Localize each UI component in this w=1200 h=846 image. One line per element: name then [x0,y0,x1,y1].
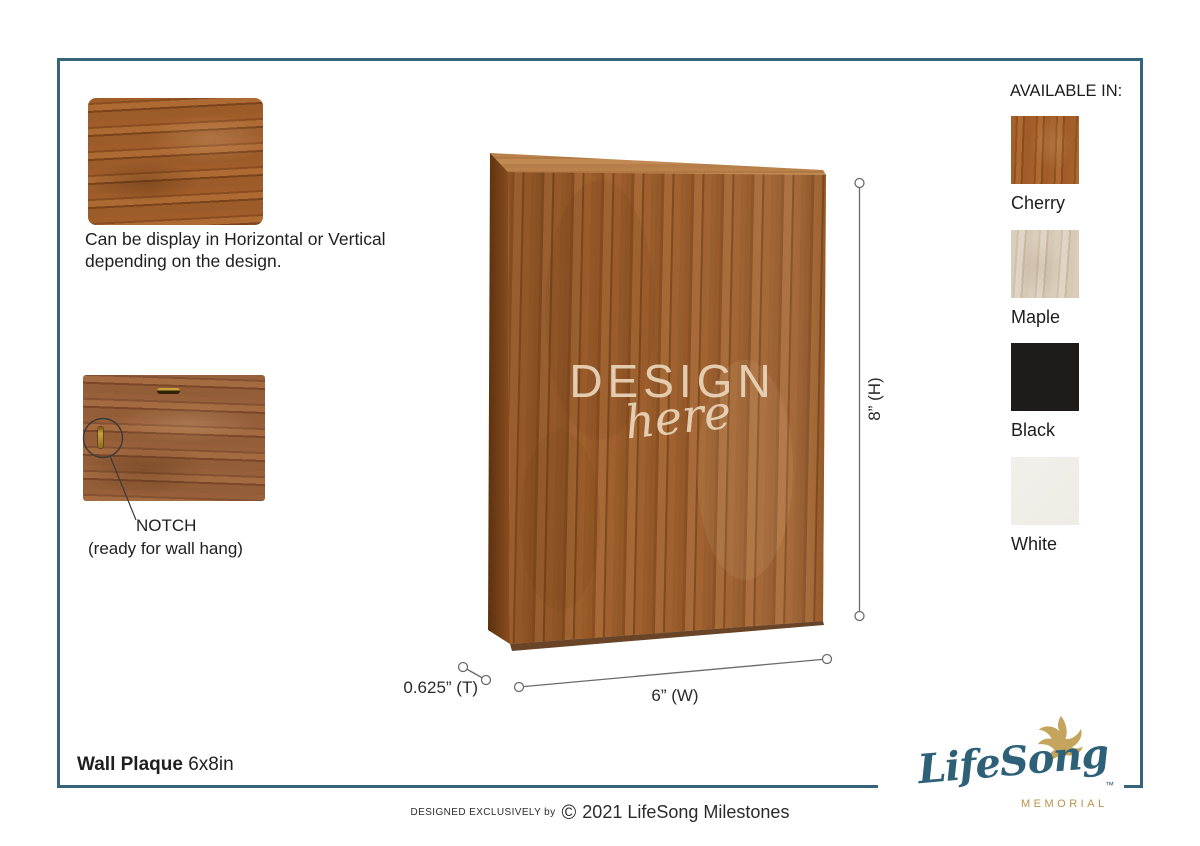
orientation-caption: Can be display in Horizontal or Vertical… [85,229,405,272]
available-in-title: AVAILABLE IN: [1010,82,1122,101]
product-name: Wall Plaque [77,754,183,775]
copyright-symbol: © [562,803,577,823]
swatch-white [1011,457,1079,525]
notch-label: NOTCH [136,516,196,536]
orientation-caption-line2: depending on the design. [85,251,405,273]
plaque-back-thumbnail [83,375,265,501]
swatch-cherry-label: Cherry [1011,193,1065,214]
swatch-white-label: White [1011,534,1057,555]
brand-logo-text: LifeSong [901,729,1124,795]
brand-trademark: ™ [1105,780,1114,790]
brand-memorial-label: MEMORIAL [1021,798,1108,810]
product-title: Wall Plaque 6x8in [77,754,234,776]
brand-logo: LifeSong ™ MEMORIAL [893,712,1143,822]
swatch-maple-label: Maple [1011,307,1060,328]
height-dimension-label: 8” (H) [865,360,885,438]
swatch-maple [1011,230,1079,298]
swatch-black [1011,343,1079,411]
product-size: 6x8in [188,754,233,775]
plaque-front-thumbnail [88,98,263,225]
copyright-text: 2021 LifeSong Milestones [582,802,789,823]
copyright-line: DESIGNED EXCLUSIVELY by © 2021 LifeSong … [300,802,900,823]
thickness-dimension-label: 0.625” (T) [370,678,478,698]
hanging-slot [157,388,180,394]
notch-detail [98,427,103,448]
swatch-black-label: Black [1011,420,1055,441]
orientation-caption-line1: Can be display in Horizontal or Vertical [85,229,405,251]
width-dimension-label: 6” (W) [615,686,735,706]
swatch-cherry [1011,116,1079,184]
designed-by-text: DESIGNED EXCLUSIVELY by [411,807,556,818]
notch-sublabel: (ready for wall hang) [88,539,243,559]
